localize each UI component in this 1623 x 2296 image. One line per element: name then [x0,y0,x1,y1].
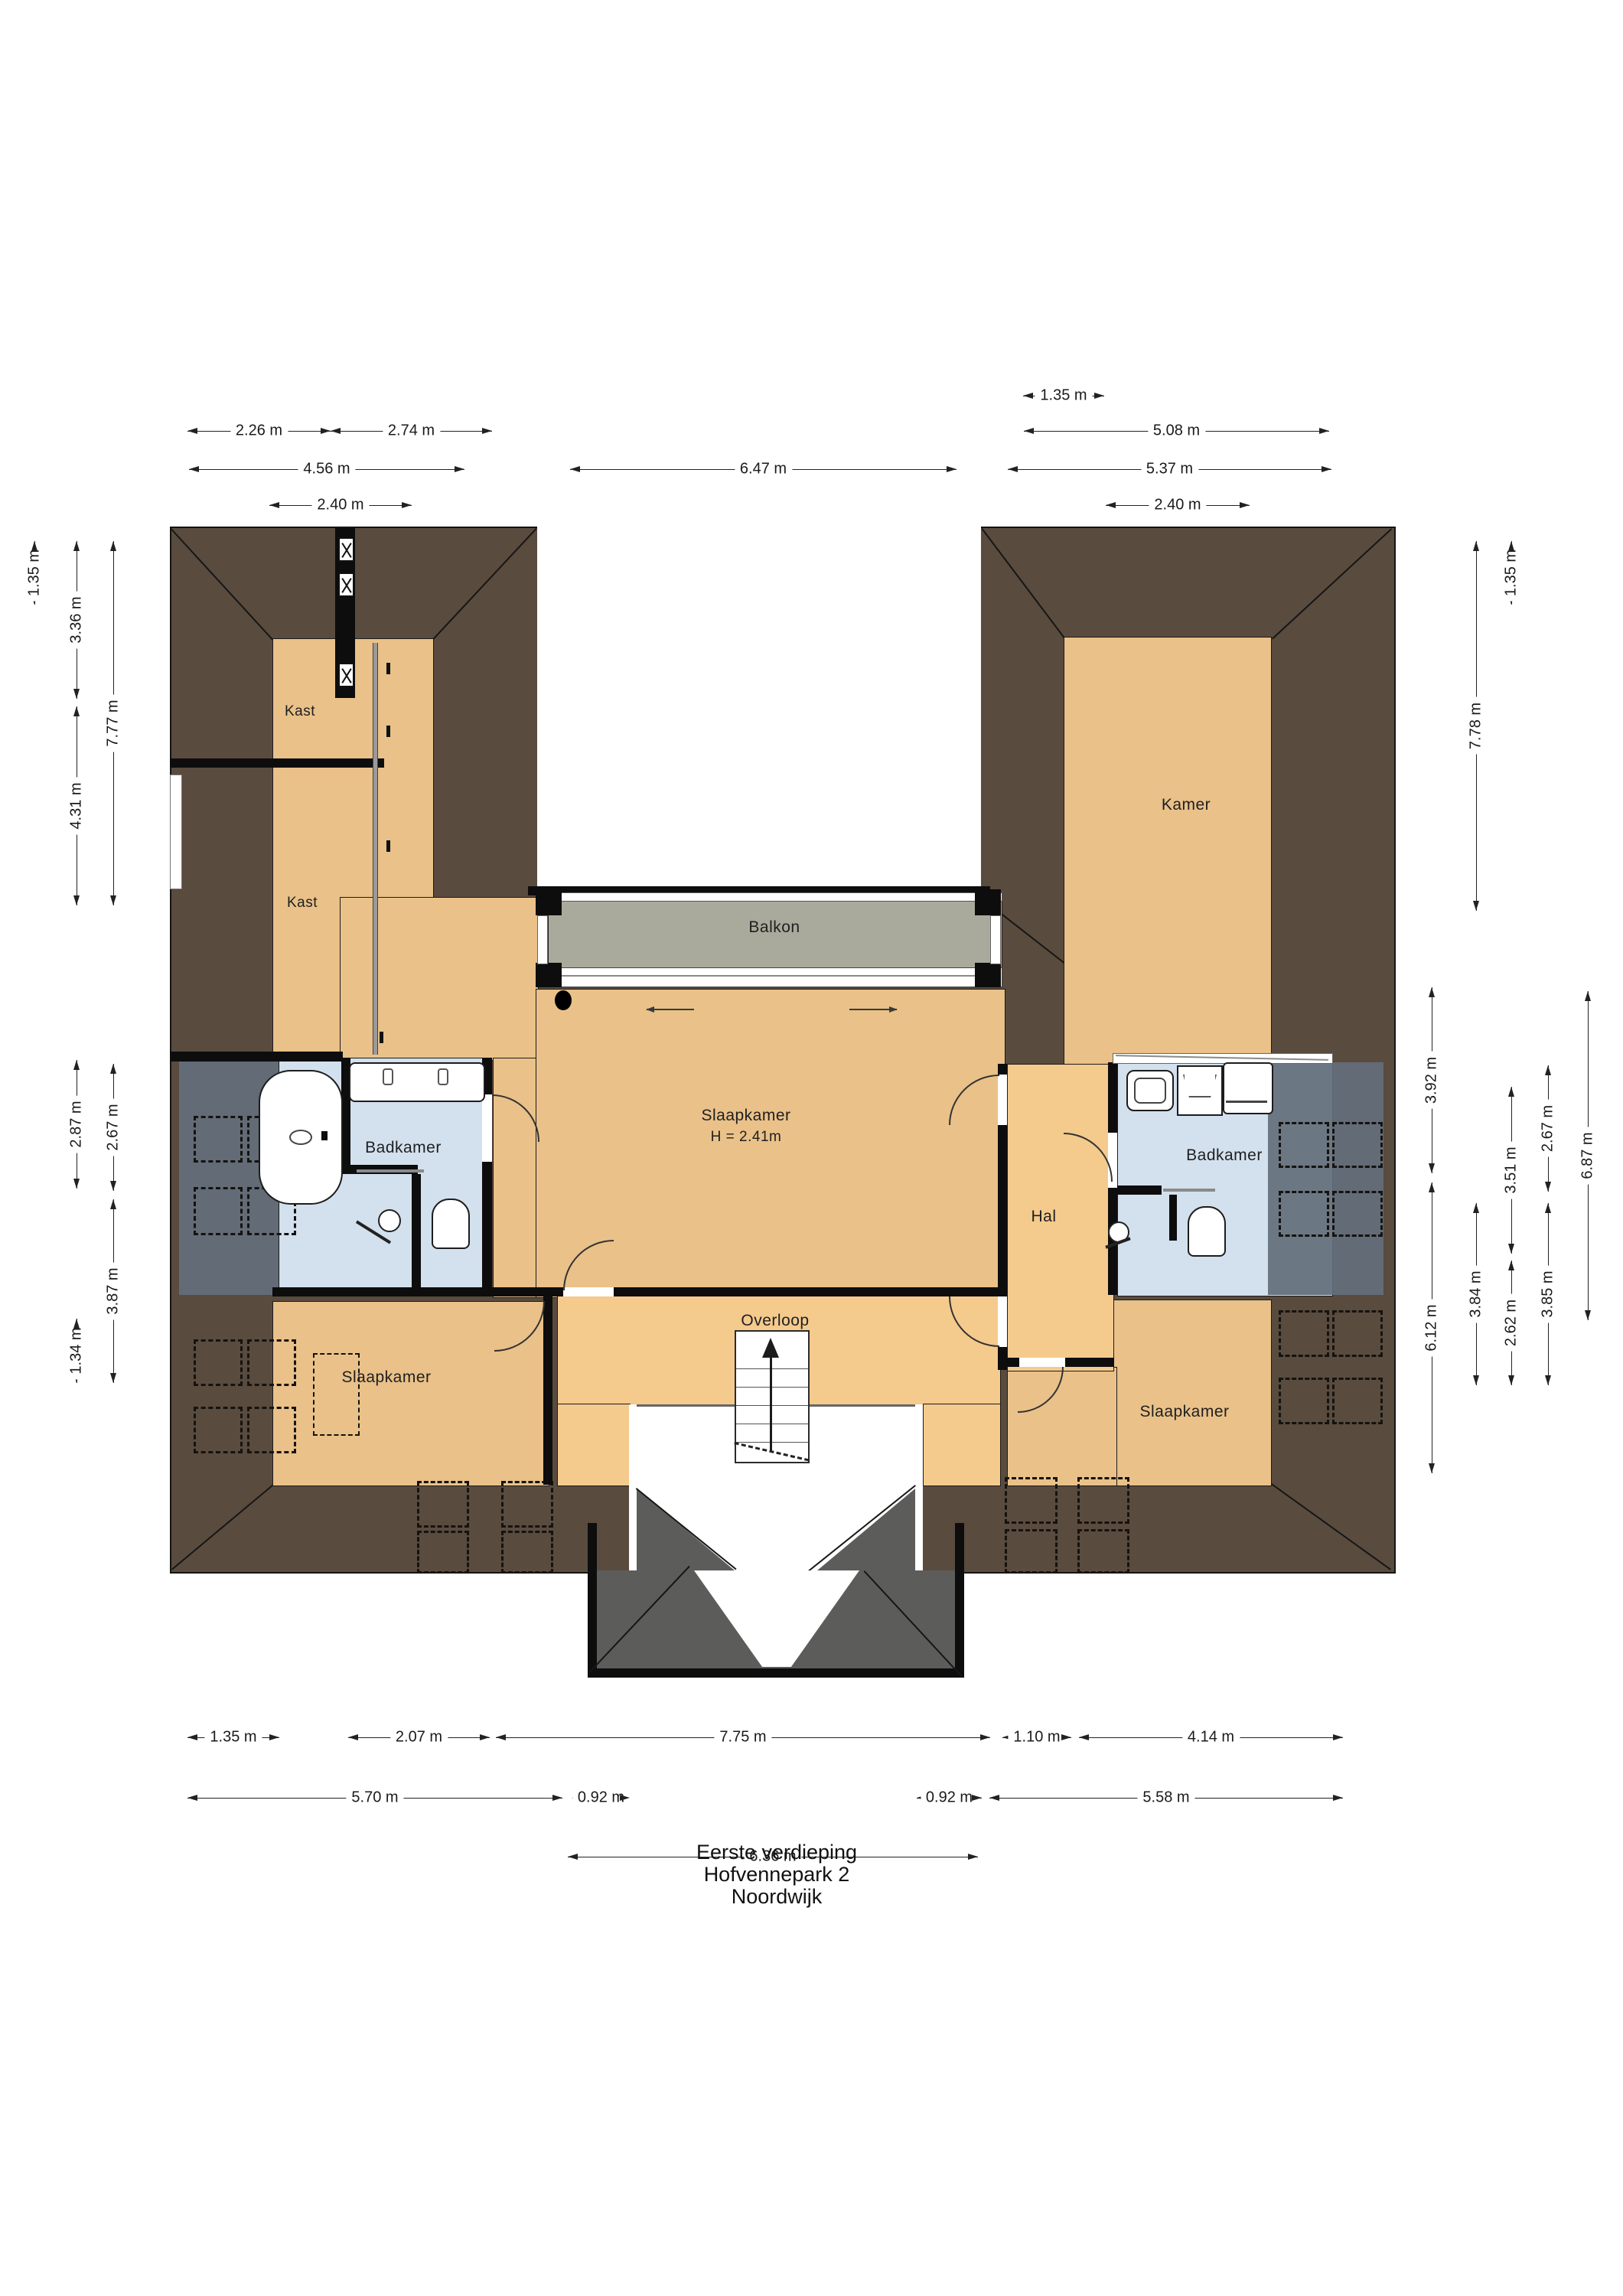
roof-window [194,1339,243,1386]
roof-window [1332,1191,1383,1237]
shaft-vent-icon [338,572,354,597]
dimension-top: 2.26 m [187,431,331,432]
dimension-label: 6.47 m [735,461,792,478]
room-label-badkamer-right: Badkamer [1186,1146,1263,1165]
dimension-bottom: 1.35 m [187,1737,279,1738]
roof-window [247,1407,296,1453]
toilet [1188,1206,1226,1257]
tower-wall-left [588,1523,597,1678]
dimension-label: 3.51 m [1503,1141,1520,1199]
balcony-post [975,889,1001,915]
roof-window [1332,1378,1383,1424]
toilet [432,1199,470,1249]
dimension-top: 2.40 m [269,505,412,506]
room-slaapkamer-right-a [1113,1300,1272,1486]
door-tick [386,726,390,737]
faucet-icon [383,1068,393,1085]
plan-title-line3: Noordwijk [732,1886,823,1908]
plan-title-line1: Eerste verdieping [696,1841,857,1864]
room-label-balkon: Balkon [748,918,800,937]
room-overloop-left [557,1404,631,1486]
roof-window [194,1407,243,1453]
dimension-label: 1.35 m [204,1729,262,1746]
dimension-bottom: 1.10 m [1002,1737,1071,1738]
dimension-left: 3.87 m [113,1199,114,1383]
window-line [552,975,996,977]
dimension-bottom: 4.14 m [1079,1737,1343,1738]
dimension-label: 7.78 m [1468,697,1485,755]
dimension-right: 3.85 m [1548,1203,1549,1385]
door-gap [1019,1358,1065,1367]
room-label-slaapkamer-right: Slaapkamer [1139,1403,1229,1421]
washbasin-counter [349,1062,485,1102]
sliding-door-arrow-right [849,1009,897,1010]
dimension-right: 6.87 m [1588,991,1589,1320]
dimension-label: 2.67 m [105,1098,122,1156]
room-kamer [1064,637,1272,1067]
dimension-label: 1.34 m [68,1322,86,1379]
balcony-post [975,963,1001,987]
dimension-label: 3.36 m [68,591,86,648]
dimension-left: 2.87 m [77,1060,77,1189]
dimension-label: 2.74 m [383,422,440,440]
room-slaapkamer-center-arm [340,897,539,1061]
room-overloop-right [923,1404,1001,1486]
roof-window [1005,1477,1058,1524]
dimension-label: 7.77 m [105,694,122,752]
bathtub-drain [289,1130,312,1145]
balcony-post [536,963,562,987]
dimension-left: 1.35 m [34,541,35,605]
dimension-bottom: 0.92 m [572,1798,630,1799]
room-label-slaapkamer-left: Slaapkamer [341,1368,431,1387]
dimension-right: 3.84 m [1476,1203,1477,1385]
wall-slaapkamer-left-east [543,1296,552,1485]
room-label-kast-top: Kast [285,703,315,720]
dimension-right: 6.12 m [1432,1182,1432,1473]
dimension-left: 1.34 m [77,1319,77,1383]
roof-window [1279,1378,1329,1424]
dimension-right: 7.78 m [1476,541,1477,911]
shower-screen [357,1169,424,1172]
dimension-bottom: 0.92 m [917,1798,982,1799]
roof-window [1005,1529,1058,1574]
wardrobe-slide-line [373,643,378,1055]
dimension-top: 2.40 m [1106,505,1250,506]
dimension-bottom: 7.75 m [496,1737,990,1738]
dimension-left: 7.77 m [113,541,114,905]
dimension-label: 6.87 m [1579,1127,1597,1184]
sliding-door-arrow-left [647,1009,694,1010]
roof-window [1279,1310,1329,1357]
door-tick [380,1032,383,1043]
stairs-up-arrow-stem [770,1358,772,1451]
roof-window [1077,1529,1129,1574]
dimension-top: 5.08 m [1024,431,1329,432]
shaft-vent-icon [338,537,354,562]
stairwell-wall-line [637,1404,735,1407]
roof-window [1077,1477,1129,1524]
stair-tread [736,1442,808,1443]
roof-window [501,1531,553,1574]
dimension-left: 3.36 m [77,541,77,699]
dimension-right: 3.51 m [1511,1087,1512,1254]
room-label-slaapkamer-height: H = 2.41m [711,1129,782,1146]
room-hal [1007,1064,1114,1371]
stair-tread [736,1405,808,1406]
dimension-left: 4.31 m [77,706,77,905]
dimension-label: 3.87 m [105,1262,122,1319]
stair-tread [736,1387,808,1388]
stair-tread [736,1424,808,1424]
dimension-label: 4.56 m [298,461,355,478]
dimension-top: 1.35 m [1023,396,1104,396]
roof-window [1332,1310,1383,1357]
washing-machine [1223,1062,1273,1114]
tower-wall-right [955,1523,964,1678]
dimension-right: 2.67 m [1548,1065,1549,1192]
dimension-label: 5.37 m [1141,461,1198,478]
wall-slaapkamer-south [272,1287,1002,1296]
door-tick [386,840,390,852]
dimension-top: 5.37 m [1008,469,1331,470]
balcony-side-window [990,915,1001,964]
dimension-label: 2.26 m [230,422,288,440]
door-tick [386,663,390,674]
faucet-icon [438,1068,448,1085]
column-dot [555,990,572,1010]
roof-window [1279,1122,1329,1168]
dimension-label: 0.92 m [921,1789,978,1807]
dimension-label: 2.07 m [390,1729,448,1746]
room-label-kast-bottom: Kast [287,895,318,912]
balcony-railing [548,892,1002,902]
roof-window [501,1481,553,1528]
dimension-top: 6.47 m [570,469,957,470]
dimension-label: 1.35 m [1503,544,1520,602]
roof-window [1332,1122,1383,1168]
dimension-right: 2.62 m [1511,1261,1512,1385]
door-gap [482,1094,492,1162]
wall-stub [1117,1186,1162,1195]
wall-stub [412,1174,421,1295]
roof-window [417,1531,469,1574]
dimension-label: 2.40 m [311,497,369,514]
roof-slope-over-badkamer-right [1268,1062,1383,1295]
dimension-label: 3.92 m [1423,1052,1441,1109]
dimension-label: 2.67 m [1540,1100,1557,1157]
dimension-label: 2.87 m [68,1095,86,1153]
balcony-side-window [537,915,548,964]
wall-stub [1169,1195,1177,1241]
dimension-top: 2.74 m [331,431,492,432]
wall-badkamer-left-top [170,1052,343,1062]
dimension-bottom: 5.58 m [989,1798,1343,1799]
washbasin-bowl [1134,1078,1166,1104]
furniture-dashed [313,1353,360,1436]
roof-window [417,1481,469,1528]
roof-window [247,1339,296,1386]
room-label-badkamer-left: Badkamer [365,1139,442,1157]
room-slaapkamer-center-strip [493,1058,539,1298]
room-label-overloop: Overloop [741,1312,809,1330]
dimension-bottom: 5.70 m [187,1798,562,1799]
balcony-window-band [548,967,1002,987]
dimension-right: 1.35 m [1511,541,1512,605]
dimension-label: 1.10 m [1008,1729,1065,1746]
dimension-label: 7.75 m [714,1729,771,1746]
roof-window [194,1116,243,1163]
dimension-label: 3.85 m [1540,1265,1557,1322]
dimension-label: 1.35 m [1035,387,1092,405]
dimension-label: 4.14 m [1182,1729,1240,1746]
stairs-up-arrow [762,1338,779,1358]
dimension-top: 4.56 m [189,469,464,470]
dimension-label: 2.62 m [1503,1294,1520,1352]
roof-window [194,1187,243,1235]
room-label-slaapkamer-center: Slaapkamer [701,1107,790,1125]
dimension-label: 4.31 m [68,777,86,834]
dimension-bottom: 2.07 m [348,1737,490,1738]
washing-machine-line [1226,1101,1267,1103]
shower-screen [1163,1189,1215,1192]
roof-window [1279,1191,1329,1237]
dimension-right: 3.92 m [1432,987,1432,1173]
balcony-post [536,889,562,915]
room-label-hal: Hal [1031,1208,1056,1226]
stair-tread [736,1368,808,1369]
dimension-label: 1.35 m [26,544,44,602]
dimension-label: 6.12 m [1423,1299,1441,1356]
window-left-wall [170,775,182,889]
dimension-label: 5.08 m [1148,422,1205,440]
room-label-kamer: Kamer [1162,796,1211,814]
bathtub-tap [321,1131,328,1140]
dimension-left: 2.67 m [113,1064,114,1191]
floorplan-canvas: Kast Kast Kamer Balkon Slaapkamer H = 2.… [0,0,1623,2296]
dimension-label: 5.70 m [346,1789,403,1807]
courtyard [537,523,981,889]
plan-title-line2: Hofvennepark 2 [704,1864,850,1886]
dimension-label: 2.40 m [1149,497,1206,514]
tower-wall-bottom [588,1668,964,1678]
dimension-label: 0.92 m [572,1789,630,1807]
wall-kast-divider [170,758,384,768]
stairwell-wall-line [808,1404,915,1407]
dimension-label: 3.84 m [1468,1265,1485,1322]
dimension-label: 5.58 m [1137,1789,1194,1807]
shaft-vent-icon [338,663,354,687]
shower-head-icon [378,1209,401,1232]
